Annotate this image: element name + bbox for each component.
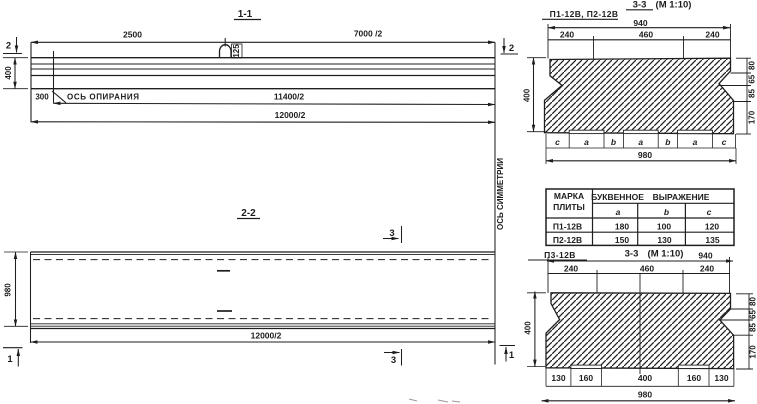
- svg-text:c: c: [555, 137, 560, 147]
- svg-text:b: b: [664, 207, 669, 217]
- svg-text:1: 1: [509, 350, 515, 361]
- svg-text:130: 130: [657, 235, 671, 245]
- svg-text:100: 100: [657, 222, 671, 232]
- svg-text:3: 3: [389, 228, 394, 239]
- svg-text:170: 170: [749, 345, 757, 359]
- svg-text:П1-12В, П2-12В: П1-12В, П2-12В: [550, 9, 619, 19]
- svg-text:120: 120: [705, 222, 719, 232]
- svg-text:180: 180: [615, 222, 629, 232]
- svg-text:170: 170: [748, 110, 757, 124]
- svg-text:a: a: [638, 137, 643, 147]
- svg-text:ВЫРАЖЕНИЕ: ВЫРАЖЕНИЕ: [653, 192, 710, 202]
- svg-text:65: 65: [749, 310, 757, 319]
- svg-text:85: 85: [748, 89, 757, 98]
- svg-text:240: 240: [560, 30, 574, 40]
- svg-text:460: 460: [640, 264, 654, 274]
- svg-text:П3-12В: П3-12В: [544, 250, 576, 260]
- svg-text:12000/2: 12000/2: [275, 110, 306, 120]
- svg-text:ОСЬ ОПИРАНИЯ: ОСЬ ОПИРАНИЯ: [67, 93, 140, 102]
- svg-text:80: 80: [749, 297, 757, 306]
- svg-text:130: 130: [714, 373, 728, 383]
- svg-text:(М 1:10): (М 1:10): [656, 0, 692, 11]
- svg-text:ОСЬ СИММЕТРИИ: ОСЬ СИММЕТРИИ: [496, 158, 505, 230]
- svg-text:ПЛИТЫ: ПЛИТЫ: [553, 202, 585, 212]
- svg-text:3-3: 3-3: [633, 0, 647, 11]
- svg-text:2: 2: [6, 41, 11, 52]
- svg-text:c: c: [707, 207, 712, 217]
- svg-text:980: 980: [638, 150, 652, 160]
- svg-text:400: 400: [524, 321, 533, 335]
- svg-text:300: 300: [35, 93, 49, 102]
- svg-text:85: 85: [749, 323, 757, 332]
- svg-text:П2-12В: П2-12В: [553, 235, 582, 245]
- svg-text:135: 135: [705, 235, 719, 245]
- svg-text:940: 940: [698, 251, 712, 261]
- svg-text:400: 400: [638, 373, 652, 383]
- svg-text:11400/2: 11400/2: [274, 92, 305, 102]
- svg-text:12000/2: 12000/2: [251, 331, 282, 341]
- svg-text:160: 160: [687, 373, 701, 383]
- svg-text:125: 125: [232, 44, 241, 58]
- svg-text:65: 65: [748, 74, 757, 83]
- svg-text:940: 940: [633, 18, 647, 28]
- svg-text:БУКВЕННОЕ: БУКВЕННОЕ: [591, 192, 644, 202]
- svg-text:a: a: [616, 207, 621, 217]
- svg-text:400: 400: [523, 88, 532, 102]
- svg-text:3: 3: [391, 355, 396, 366]
- svg-text:c: c: [722, 137, 727, 147]
- svg-text:П1-12В: П1-12В: [553, 222, 582, 232]
- svg-text:2: 2: [509, 43, 514, 54]
- svg-text:240: 240: [700, 264, 714, 274]
- svg-text:7000 /2: 7000 /2: [354, 29, 383, 39]
- svg-text:1: 1: [7, 354, 13, 365]
- svg-text:1-1: 1-1: [238, 9, 253, 20]
- svg-text:2500: 2500: [123, 30, 142, 40]
- svg-text:b: b: [611, 137, 616, 147]
- svg-text:980: 980: [638, 390, 652, 400]
- svg-text:a: a: [693, 137, 698, 147]
- svg-text:МАРКА: МАРКА: [554, 191, 584, 201]
- svg-text:(М 1:10): (М 1:10): [648, 249, 684, 260]
- svg-text:150: 150: [615, 235, 629, 245]
- svg-text:2-2: 2-2: [241, 208, 256, 219]
- svg-text:3-3: 3-3: [625, 249, 639, 260]
- svg-text:130: 130: [551, 373, 565, 383]
- svg-text:240: 240: [564, 264, 578, 274]
- svg-text:b: b: [665, 137, 670, 147]
- svg-text:400: 400: [4, 66, 13, 80]
- svg-text:980: 980: [4, 283, 13, 297]
- svg-text:80: 80: [748, 61, 757, 70]
- svg-text:240: 240: [705, 30, 719, 40]
- svg-text:a: a: [584, 137, 589, 147]
- svg-text:460: 460: [639, 30, 653, 40]
- svg-text:160: 160: [579, 373, 593, 383]
